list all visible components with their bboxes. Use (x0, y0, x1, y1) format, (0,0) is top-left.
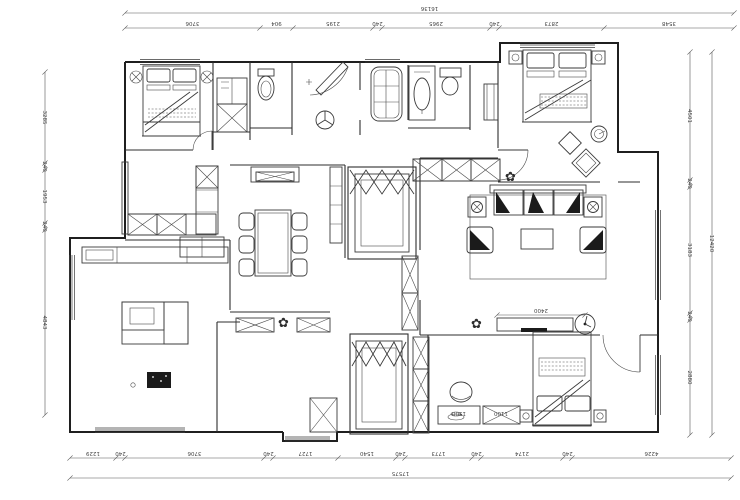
dimension-value: 240 (686, 311, 692, 322)
storage-xbox (128, 214, 157, 235)
storage-xbox (236, 318, 274, 332)
toilet-icon (258, 69, 274, 100)
ceiling-symbol-icon (130, 71, 213, 83)
floor-plan-canvas: ✿ (0, 0, 740, 500)
bed-icon (522, 50, 592, 122)
knob-icon (131, 383, 135, 387)
storage-xbox (196, 166, 218, 188)
dimension-value: 1773 (431, 450, 445, 456)
elevator-core-lower (350, 334, 408, 434)
toilet-icon (409, 66, 435, 120)
dimension-value: 3285 (41, 111, 47, 125)
dimension-value: 1727 (298, 450, 312, 456)
fan-icon (316, 111, 334, 129)
storage-xbox (402, 293, 418, 330)
dimension-value: 4226 (644, 450, 658, 456)
dimension-value: 240 (115, 450, 126, 456)
sofa-icon (490, 185, 586, 215)
plant-icon: ✿ (471, 317, 482, 332)
storage-xbox (471, 159, 500, 181)
bathroom-middle (371, 66, 498, 121)
dimension-line: 17575 (67, 470, 733, 481)
dimension-value: 2965 (429, 20, 443, 26)
dimension-value: 16136 (420, 5, 438, 11)
dimension-line: 2400 (494, 307, 587, 318)
dimension-value: 1953 (41, 190, 47, 204)
clock-icon (575, 314, 595, 334)
dimension-value: 2880 (686, 371, 692, 385)
dimension-value: 240 (263, 450, 274, 456)
hallway: ✿ (278, 316, 289, 331)
dimension-value: 240 (686, 178, 692, 189)
storage-xbox (157, 214, 186, 235)
elevator-core-upper (348, 167, 416, 259)
dimension-value: 240 (395, 450, 406, 456)
dimension-value: 4501 (686, 109, 692, 123)
dimension-value: 3183 (686, 243, 692, 257)
sideboard-icon (251, 167, 299, 182)
bedroom1-door (193, 131, 212, 150)
plant-icon: ✿ (278, 316, 289, 331)
entry-door (306, 62, 348, 95)
dimension-value: 2873 (544, 20, 558, 26)
bench-cabinet-icon (82, 247, 228, 263)
family-room (82, 247, 228, 388)
coffee-table-icon (521, 229, 553, 249)
bedroom-top-right (509, 50, 607, 177)
study-cabinet (196, 166, 218, 234)
dimension-value: 3706 (185, 20, 199, 26)
dimension-line: 12420 (708, 49, 715, 437)
dimension-line: 450124031832402880 (686, 49, 693, 437)
dimension-value: 2174 (515, 450, 529, 456)
dimension-value: 904 (271, 20, 282, 26)
lounge-chair-icon (559, 126, 607, 177)
dimension-value: 17575 (391, 470, 409, 476)
dimension-value: 2400 (534, 307, 548, 313)
tv-cabinet-icon (497, 318, 573, 332)
sectional-sofa-icon (122, 302, 188, 344)
storage-xbox (413, 337, 429, 369)
cooktop-icon (147, 372, 171, 388)
storage-xbox (310, 398, 337, 432)
tall-cabinet-icon (330, 167, 342, 243)
storage-xbox (402, 256, 418, 293)
plant-icon: ✿ (505, 170, 516, 185)
dimension-value: 1229 (86, 450, 100, 456)
storage-xbox (413, 369, 429, 401)
bedroom-top-left (130, 66, 213, 136)
storage-xbox (217, 104, 247, 132)
dimension-line: 37069042195240296524028733548 (122, 20, 736, 31)
dimension-layer: 3706904219524029652402873354816136122924… (41, 5, 737, 481)
dimension-line: 1229240370624017271540240177324021742404… (67, 450, 733, 461)
dimension-value: 240 (41, 161, 47, 172)
bed-icon (142, 66, 201, 136)
desk-chair-icon (450, 382, 472, 402)
dimension-value: 240 (489, 20, 500, 26)
dimension-value: 4843 (41, 316, 47, 330)
dimension-value: 1540 (360, 450, 374, 456)
floor-plan: ✿ (0, 0, 740, 500)
storage-xbox (442, 159, 471, 181)
storage-xbox (413, 401, 429, 433)
dimension-value: 240 (372, 20, 383, 26)
dimension-line: 16136 (122, 5, 736, 16)
dining-chairs (239, 213, 307, 276)
storage-xbox (297, 318, 330, 332)
dimension-value: 240 (562, 450, 573, 456)
closet-cabinet (217, 78, 247, 104)
storage-xbox (413, 159, 442, 181)
storage-xbox (256, 172, 294, 181)
dimension-line: 328524019532404843 (41, 69, 48, 417)
storage-xbox (483, 406, 520, 424)
bathtub-icon (371, 67, 402, 121)
living-room (413, 159, 606, 334)
dimension-value: 240 (41, 221, 47, 232)
shower-column-icon (484, 84, 498, 120)
dimension-value: 240 (471, 450, 482, 456)
dimension-value: 2195 (326, 20, 340, 26)
study-room (122, 162, 224, 257)
bed-icon (532, 332, 592, 426)
dimension-value: 3548 (662, 20, 676, 26)
dining-room (239, 167, 342, 276)
desk-dim-label: 1500 (452, 410, 466, 416)
dimension-value: 3706 (187, 450, 201, 456)
washbasin-icon (440, 68, 461, 95)
dining-table-icon (255, 210, 291, 276)
dimension-value: 12420 (708, 235, 714, 253)
bedroom3-door (603, 335, 640, 372)
